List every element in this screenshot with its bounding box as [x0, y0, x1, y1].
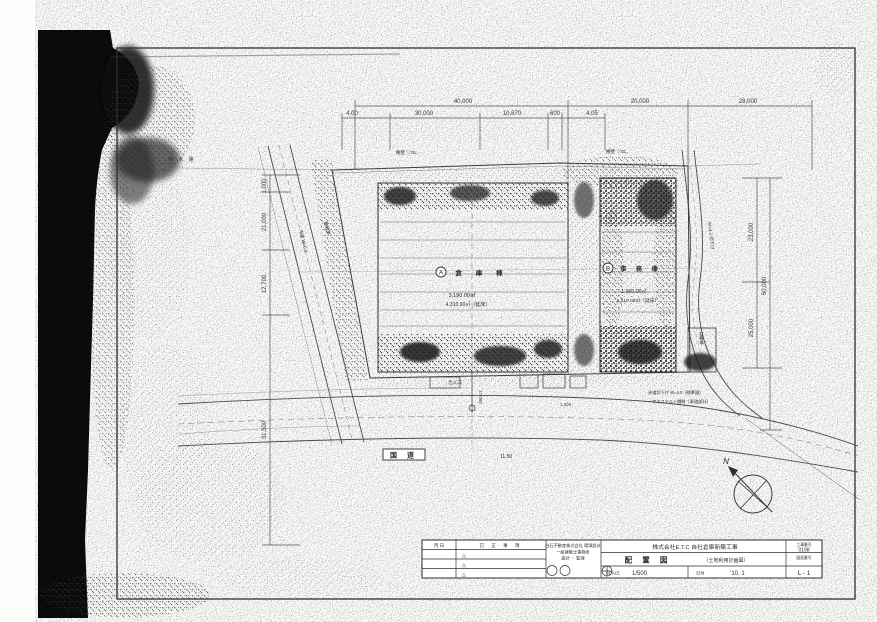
corridor	[568, 178, 600, 372]
dim-right-0: 23,000	[749, 222, 755, 241]
dim-top1-1: 20,000	[631, 99, 650, 105]
job-no-label: 工事番号	[796, 542, 811, 547]
scale-label: SCALE	[606, 571, 620, 576]
sheet-no-label: 図面番号	[796, 555, 811, 560]
company-line-1: 白石不動産株式会社 環境設計	[545, 542, 601, 549]
project-title: 株式会社E.T.C 自社倉庫新築工事	[652, 543, 738, 551]
building-b-area1: 1,960.00㎡	[621, 287, 647, 295]
building-a-area1: 3,190.00㎡	[449, 291, 476, 299]
dim-left-0: 1,000	[262, 178, 268, 194]
entrance-label: 出入口	[448, 379, 462, 386]
wall-right-label: 擁壁 ▽GL	[606, 148, 627, 155]
north-label: N	[723, 457, 729, 466]
dim-top2-0: 4,00	[346, 111, 358, 117]
site-plan-svg: A 倉 庫 棟 3,190.00㎡ 4,310.00㎡（延床） B 事 務 棟 …	[0, 0, 877, 622]
wall-left-label: 擁壁 ▽GL	[396, 149, 417, 156]
sheet-no-value: L - 1	[798, 570, 811, 577]
road-name-label: 国 道	[390, 451, 418, 460]
company-line-3: 設計 ・ 監理	[561, 555, 585, 562]
curb-annotation: 歩道切下げ W=4.0（標準図）	[648, 389, 703, 396]
dim-bottom-1: 1,500	[560, 402, 572, 407]
company-line-2: 一級建築士事務所	[556, 549, 590, 556]
dim-top2-4: 4,05	[586, 111, 598, 117]
dim-bottom-0: 17,000	[478, 390, 483, 404]
building-b-name: 事 務 棟	[620, 265, 661, 273]
dim-top2-3: 600	[550, 111, 561, 117]
dim-right-2: 25,000	[749, 318, 755, 337]
dim-top2-1: 30,000	[415, 111, 434, 117]
drawing-title: 配 置 図	[625, 555, 672, 565]
drawing-subtitle: （土地利用計画図）	[703, 557, 748, 564]
dim-top2-2: 10,870	[503, 111, 522, 117]
dim-right-1: 50,000	[762, 276, 768, 295]
dim-left-3: 31,500	[262, 420, 268, 439]
dim-left-1: 21,000	[262, 212, 268, 231]
paving-annotation: アスファルト舗装（車道部分）	[652, 398, 711, 405]
dim-top1-2: 28,000	[739, 99, 758, 105]
scale-value: 1/500	[632, 571, 648, 577]
building-b-area2: 2,310.00㎡（延床）	[617, 297, 660, 304]
building-b: B 事 務 棟 1,960.00㎡ 2,310.00㎡（延床）	[600, 178, 678, 372]
dim-left-2: 12,700	[262, 274, 268, 293]
job-no-value: 0198	[798, 548, 809, 554]
rev-mark-0: △	[462, 553, 466, 559]
blotch-speckle-bottom	[40, 573, 210, 617]
building-a-name: 倉 庫 棟	[454, 268, 508, 277]
rev-mark-1: △	[462, 563, 466, 569]
site-bottom-strip	[378, 372, 678, 387]
dim-top1-0: 40,000	[454, 99, 473, 105]
title-block: 月 日 訂 正 事 項 △ △ △ 白石不動産株式会社 環境設計 一級建築士事務…	[422, 540, 822, 578]
ancillary-structure: 駐輪場	[684, 328, 716, 372]
drain-label: 排 水 路	[168, 156, 196, 163]
date-label: 日付	[696, 570, 704, 577]
date-value: ’10. 1	[730, 571, 745, 577]
rev-mark-2: △	[462, 572, 466, 578]
revision-header: 訂 正 事 項	[480, 542, 523, 549]
building-a-area2: 4,310.00㎡（延床）	[446, 301, 490, 308]
scanned-site-plan-sheet: A 倉 庫 棟 3,190.00㎡ 4,310.00㎡（延床） B 事 務 棟 …	[0, 0, 877, 622]
road-width-label: 11,50	[500, 454, 512, 460]
ancillary-label: 駐輪場	[699, 330, 705, 345]
